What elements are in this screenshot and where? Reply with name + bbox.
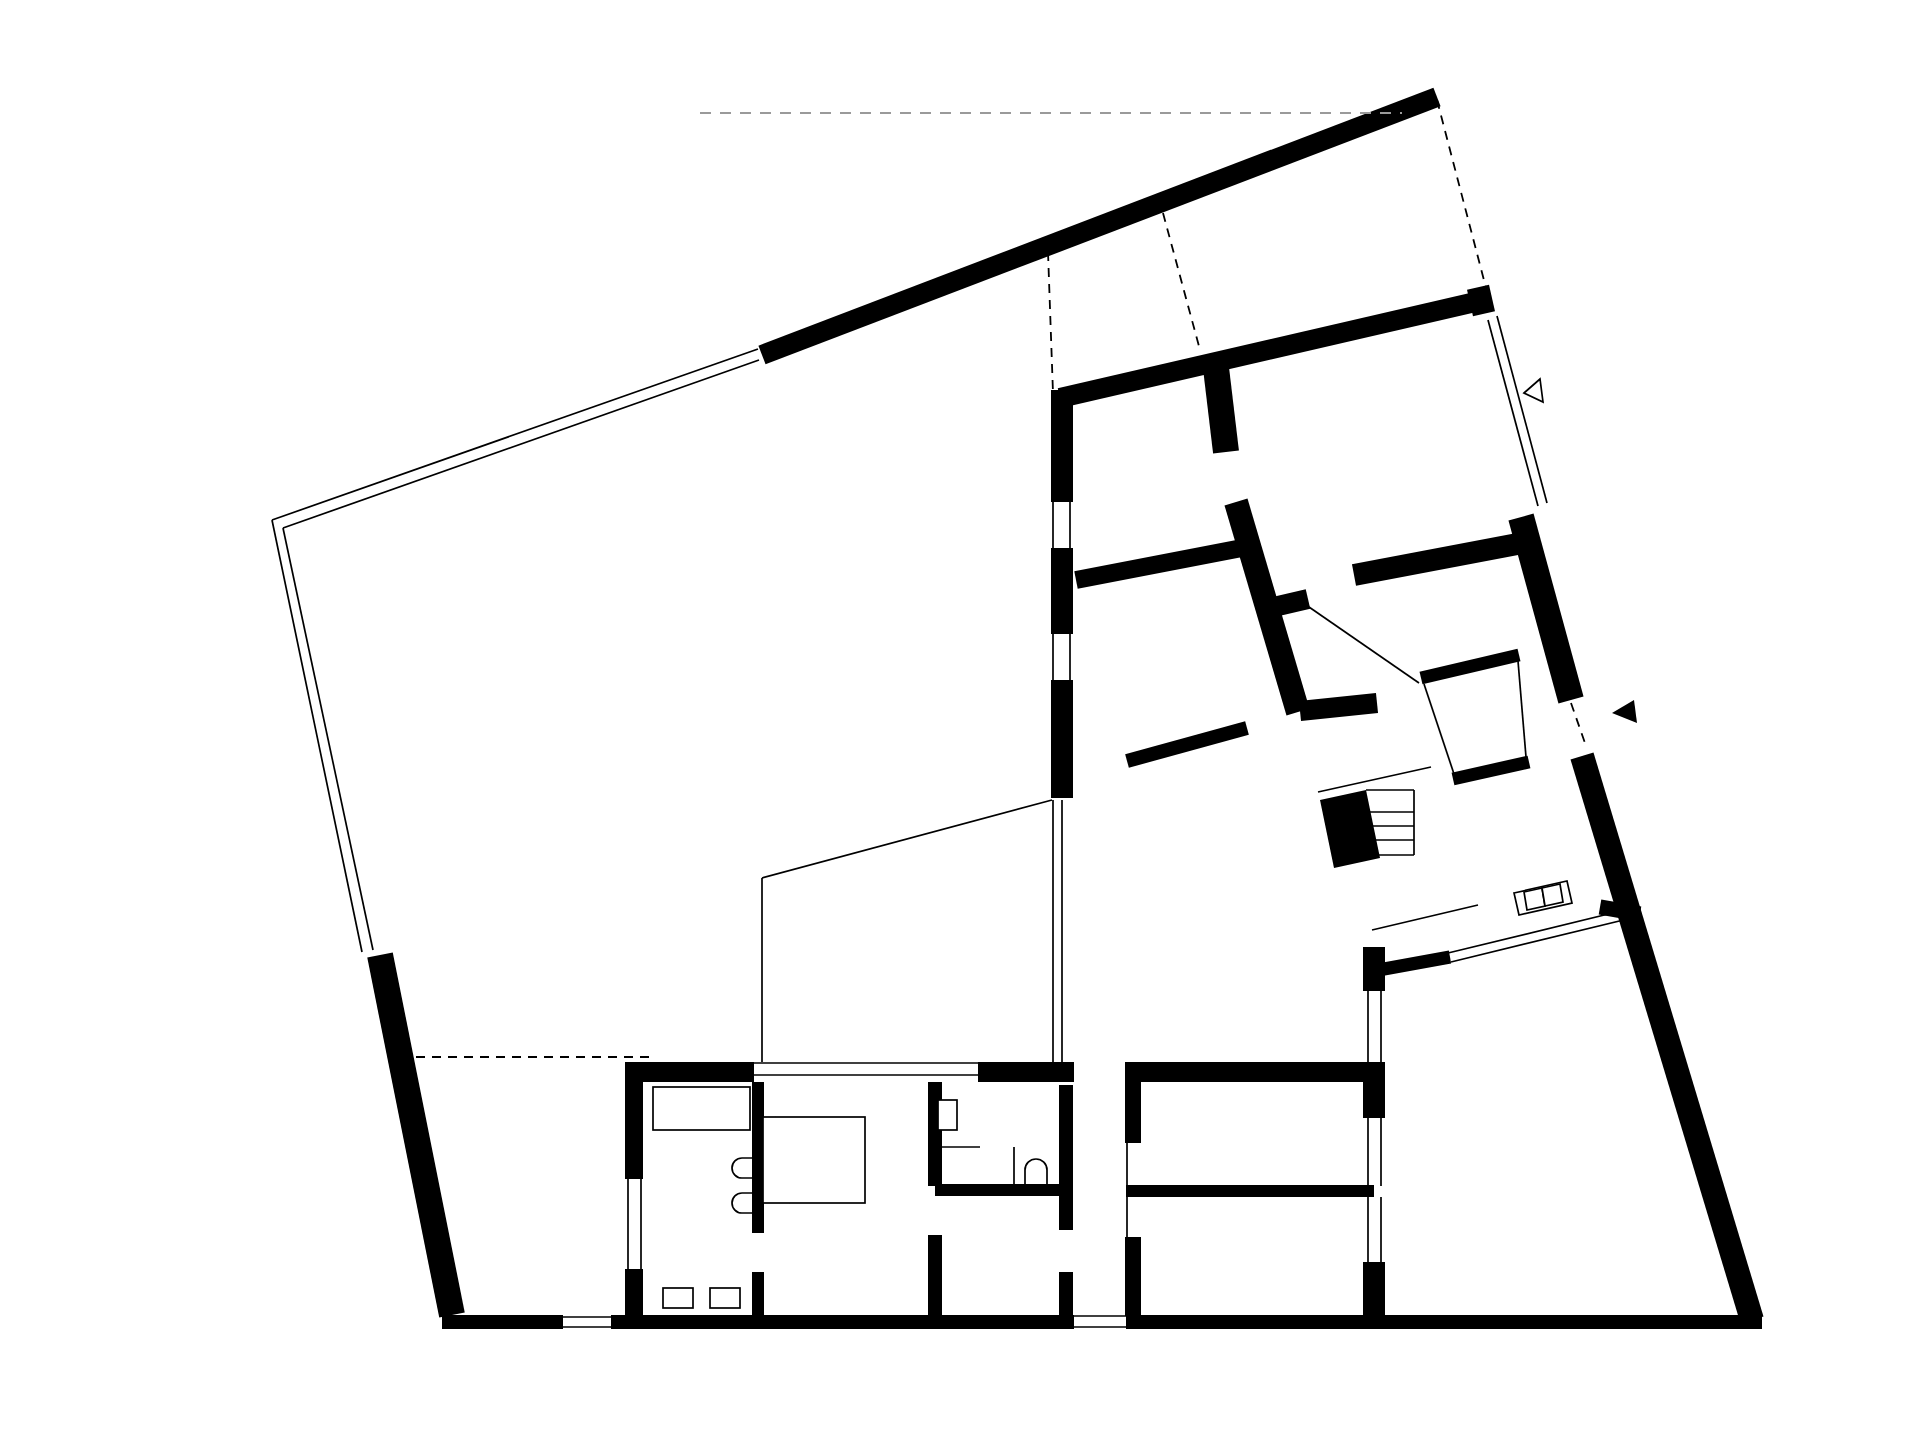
partition-hall-west [1300,703,1377,711]
washer-1 [732,1158,755,1178]
utility-box-1 [663,1288,693,1308]
house-wall-top [1060,300,1484,398]
kitchen-glazing-line [1372,905,1478,930]
basin [1025,1159,1047,1188]
kitchen-island-wall [1127,728,1247,761]
stair-block [1320,790,1380,868]
closet-side-ne [1518,661,1526,757]
partition-p1-stub [1278,599,1308,606]
floor-plan-drawing [0,0,1920,1437]
partition-p1-upper [1216,368,1226,452]
boundary-wall-top [762,97,1437,355]
washer-2 [732,1193,755,1213]
dash-roof-edge-mid [1163,213,1200,350]
fence-top-inner [283,360,759,528]
entry-arrow-icon [1612,700,1637,723]
floor-plan-page [0,0,1920,1437]
dash-entry-door [1571,703,1585,743]
patio-edge-diagonal [762,800,1052,878]
view-marker-icon [1524,379,1543,402]
house-wall-top-end-block [1470,298,1492,303]
wc-cistern [938,1100,957,1130]
boundary-wall-right-upper [1521,517,1571,700]
fence-left-outer [272,520,362,952]
door-swing-room-c [1309,607,1419,683]
utility-counter [653,1087,750,1130]
closet-side-sw [1424,684,1454,774]
closet-wall-se [1453,762,1529,779]
terrace-glazing-b [1451,916,1640,962]
terrace-glazing-a [1448,907,1637,953]
stair-rail [1318,767,1431,792]
partition-room-ab [1076,548,1242,580]
boundary-wall-right-lower [1582,756,1752,1320]
partition-room-c-south [1354,542,1528,575]
glazing-ne-a [1488,320,1538,506]
dash-roof-edge-west [1048,252,1053,393]
boundary-wall-left [380,955,452,1315]
bed [763,1117,865,1203]
closet-wall-nw [1421,655,1519,678]
fence-top-outer [272,349,758,520]
kitchen-sink-cell-2 [1542,884,1563,906]
dash-boundary-ne [1437,100,1486,288]
glazing-ne-b [1497,316,1547,503]
utility-box-2 [710,1288,740,1308]
fence-left-inner [283,528,373,950]
